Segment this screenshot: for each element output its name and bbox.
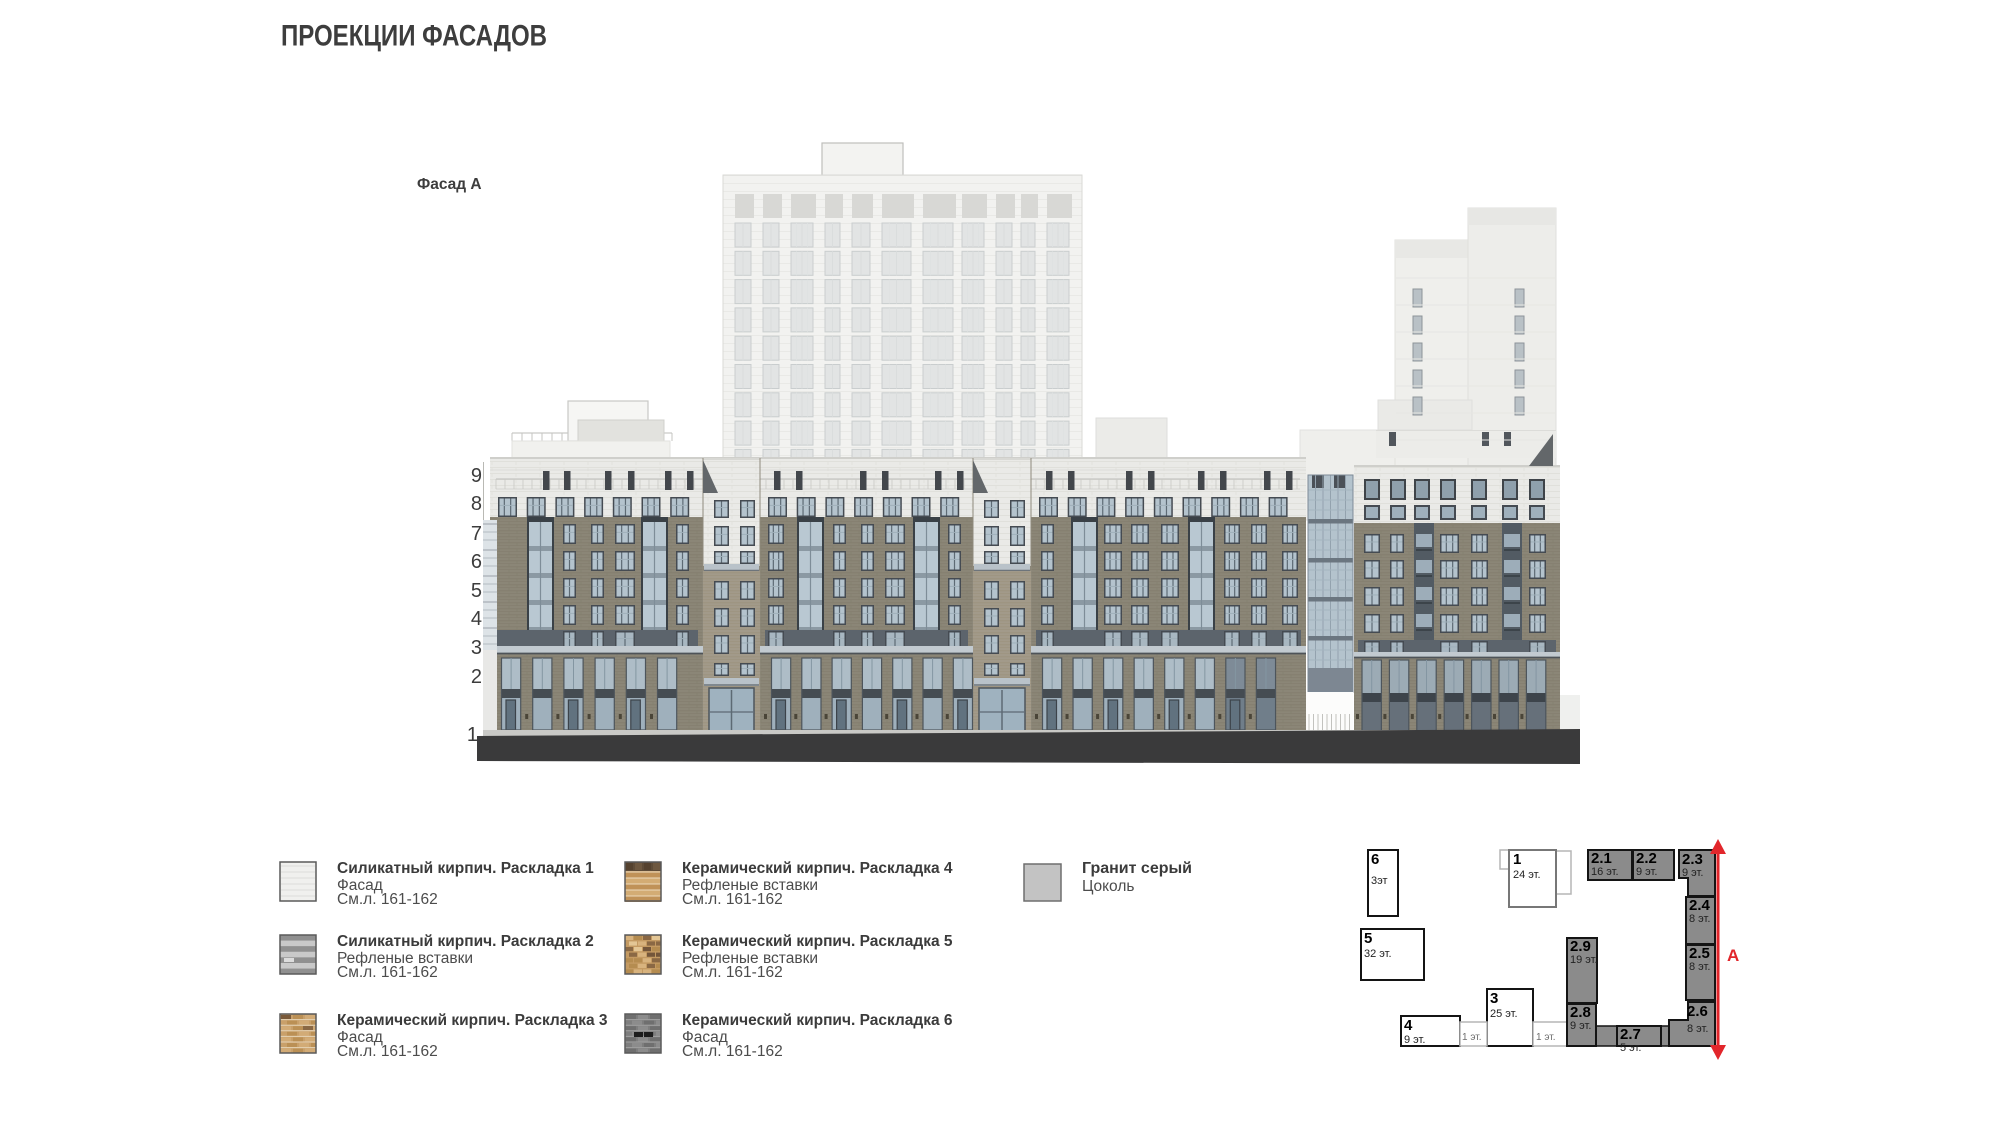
svg-text:2.3: 2.3: [1682, 851, 1703, 868]
svg-text:2.1: 2.1: [1591, 850, 1612, 867]
svg-text:2.2: 2.2: [1636, 850, 1657, 867]
svg-text:9 эт.: 9 эт.: [1636, 866, 1657, 878]
svg-text:5 эт.: 5 эт.: [1620, 1042, 1641, 1054]
svg-text:См.л. 161-162: См.л. 161-162: [682, 891, 783, 908]
svg-text:Керамический кирпич. Раскладка: Керамический кирпич. Раскладка 4: [682, 860, 953, 877]
svg-text:9: 9: [471, 465, 482, 487]
svg-text:1 эт.: 1 эт.: [1462, 1032, 1481, 1043]
svg-text:4: 4: [471, 608, 482, 630]
svg-text:4: 4: [1404, 1017, 1413, 1034]
svg-text:См.л. 161-162: См.л. 161-162: [682, 1043, 783, 1060]
svg-text:5: 5: [1364, 930, 1372, 947]
svg-text:8: 8: [471, 493, 482, 515]
svg-text:См.л. 161-162: См.л. 161-162: [337, 964, 438, 981]
svg-text:Силикатный кирпич. Раскладка 2: Силикатный кирпич. Раскладка 2: [337, 933, 594, 950]
svg-text:См.л. 161-162: См.л. 161-162: [337, 891, 438, 908]
svg-text:1: 1: [467, 724, 478, 746]
svg-text:3эт: 3эт: [1371, 875, 1388, 887]
svg-text:Фасад А: Фасад А: [417, 176, 482, 193]
svg-text:24 эт.: 24 эт.: [1513, 869, 1541, 881]
svg-text:2.8: 2.8: [1570, 1004, 1591, 1021]
svg-text:1 эт.: 1 эт.: [1536, 1032, 1555, 1043]
svg-text:8 эт.: 8 эт.: [1689, 961, 1710, 973]
svg-text:1: 1: [1513, 851, 1521, 868]
svg-text:2.5: 2.5: [1689, 945, 1710, 962]
svg-text:7: 7: [471, 523, 482, 545]
svg-text:9 эт.: 9 эт.: [1404, 1034, 1425, 1046]
svg-text:2.7: 2.7: [1620, 1026, 1641, 1043]
svg-text:Керамический кирпич. Раскладка: Керамический кирпич. Раскладка 5: [682, 933, 953, 950]
svg-text:Керамический кирпич. Раскладка: Керамический кирпич. Раскладка 6: [682, 1012, 953, 1029]
svg-text:Гранит серый: Гранит серый: [1082, 860, 1192, 877]
svg-text:6: 6: [471, 551, 482, 573]
svg-text:2.6: 2.6: [1687, 1003, 1708, 1020]
svg-text:8 эт.: 8 эт.: [1689, 913, 1710, 925]
svg-text:Цоколь: Цоколь: [1082, 878, 1134, 895]
svg-text:3: 3: [1490, 990, 1498, 1007]
svg-text:32 эт.: 32 эт.: [1364, 948, 1392, 960]
svg-text:9 эт.: 9 эт.: [1682, 867, 1703, 879]
svg-text:Силикатный кирпич. Раскладка 1: Силикатный кирпич. Раскладка 1: [337, 860, 594, 877]
svg-text:9 эт.: 9 эт.: [1570, 1020, 1591, 1032]
svg-text:См.л. 161-162: См.л. 161-162: [682, 964, 783, 981]
svg-text:2: 2: [471, 666, 482, 688]
svg-text:19 эт.: 19 эт.: [1570, 954, 1598, 966]
svg-text:6: 6: [1371, 851, 1379, 868]
svg-text:А: А: [1727, 946, 1739, 965]
svg-text:25 эт.: 25 эт.: [1490, 1008, 1518, 1020]
svg-text:5: 5: [471, 580, 482, 602]
svg-text:16 эт.: 16 эт.: [1591, 866, 1619, 878]
svg-text:2.9: 2.9: [1570, 938, 1591, 955]
svg-text:ПРОЕКЦИИ ФАСАДОВ: ПРОЕКЦИИ ФАСАДОВ: [281, 20, 547, 53]
svg-text:См.л. 161-162: См.л. 161-162: [337, 1043, 438, 1060]
svg-text:3: 3: [471, 637, 482, 659]
svg-text:2.4: 2.4: [1689, 897, 1711, 914]
svg-text:Керамический кирпич. Раскладка: Керамический кирпич. Раскладка 3: [337, 1012, 608, 1029]
svg-text:8 эт.: 8 эт.: [1687, 1023, 1708, 1035]
